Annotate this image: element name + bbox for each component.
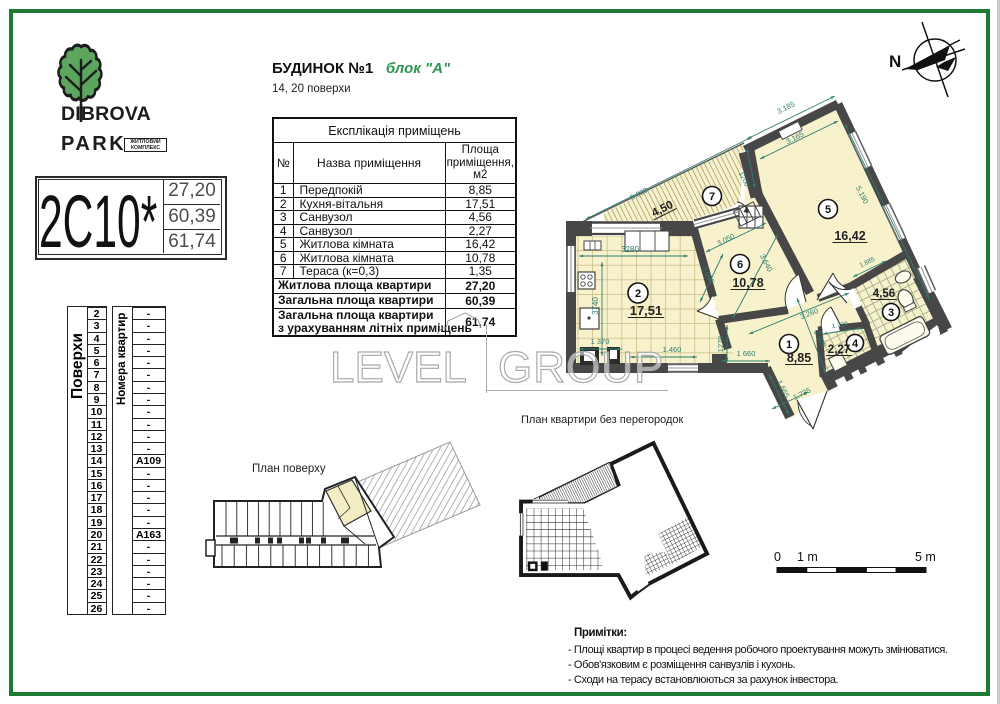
svg-text:5 m: 5 m bbox=[915, 550, 936, 564]
svg-text:10,78: 10,78 bbox=[732, 276, 763, 290]
svg-text:N: N bbox=[889, 52, 901, 71]
svg-text:2: 2 bbox=[635, 288, 641, 300]
svg-text:4: 4 bbox=[852, 338, 859, 350]
svg-text:1: 1 bbox=[786, 339, 792, 351]
svg-text:7: 7 bbox=[709, 191, 715, 203]
svg-text:1 660: 1 660 bbox=[737, 349, 756, 358]
svg-text:3740: 3740 bbox=[591, 297, 600, 315]
svg-text:3: 3 bbox=[888, 307, 894, 319]
svg-text:8,85: 8,85 bbox=[787, 351, 811, 365]
svg-text:4,56: 4,56 bbox=[873, 288, 895, 300]
svg-text:5: 5 bbox=[825, 204, 831, 216]
svg-text:16,42: 16,42 bbox=[834, 229, 865, 243]
svg-text:17,51: 17,51 bbox=[630, 303, 663, 318]
svg-text:0: 0 bbox=[774, 550, 781, 564]
svg-text:3.185: 3.185 bbox=[775, 100, 796, 116]
svg-text:3280: 3280 bbox=[621, 245, 639, 254]
svg-text:2,27: 2,27 bbox=[828, 344, 850, 356]
svg-text:1270: 1270 bbox=[716, 336, 725, 353]
svg-text:6: 6 bbox=[737, 259, 743, 271]
svg-text:1 m: 1 m bbox=[797, 550, 818, 564]
svg-text:1.460: 1.460 bbox=[663, 345, 682, 354]
